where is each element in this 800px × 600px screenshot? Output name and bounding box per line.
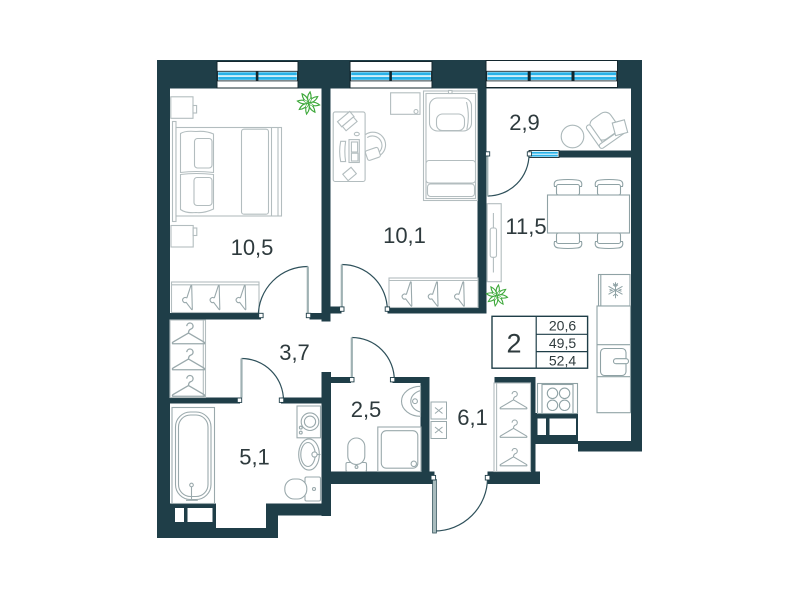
svg-text:20,6: 20,6 [549,317,576,333]
svg-text:5,1: 5,1 [239,445,270,470]
svg-text:2: 2 [506,329,521,359]
svg-text:52,4: 52,4 [549,353,576,369]
svg-text:3,7: 3,7 [279,340,310,365]
svg-text:11,5: 11,5 [505,214,546,239]
svg-text:49,5: 49,5 [549,335,576,351]
svg-text:6,1: 6,1 [457,405,488,430]
svg-text:2,9: 2,9 [509,110,540,135]
svg-text:10,1: 10,1 [383,223,426,248]
svg-text:2,5: 2,5 [351,397,382,422]
svg-text:10,5: 10,5 [231,235,274,260]
